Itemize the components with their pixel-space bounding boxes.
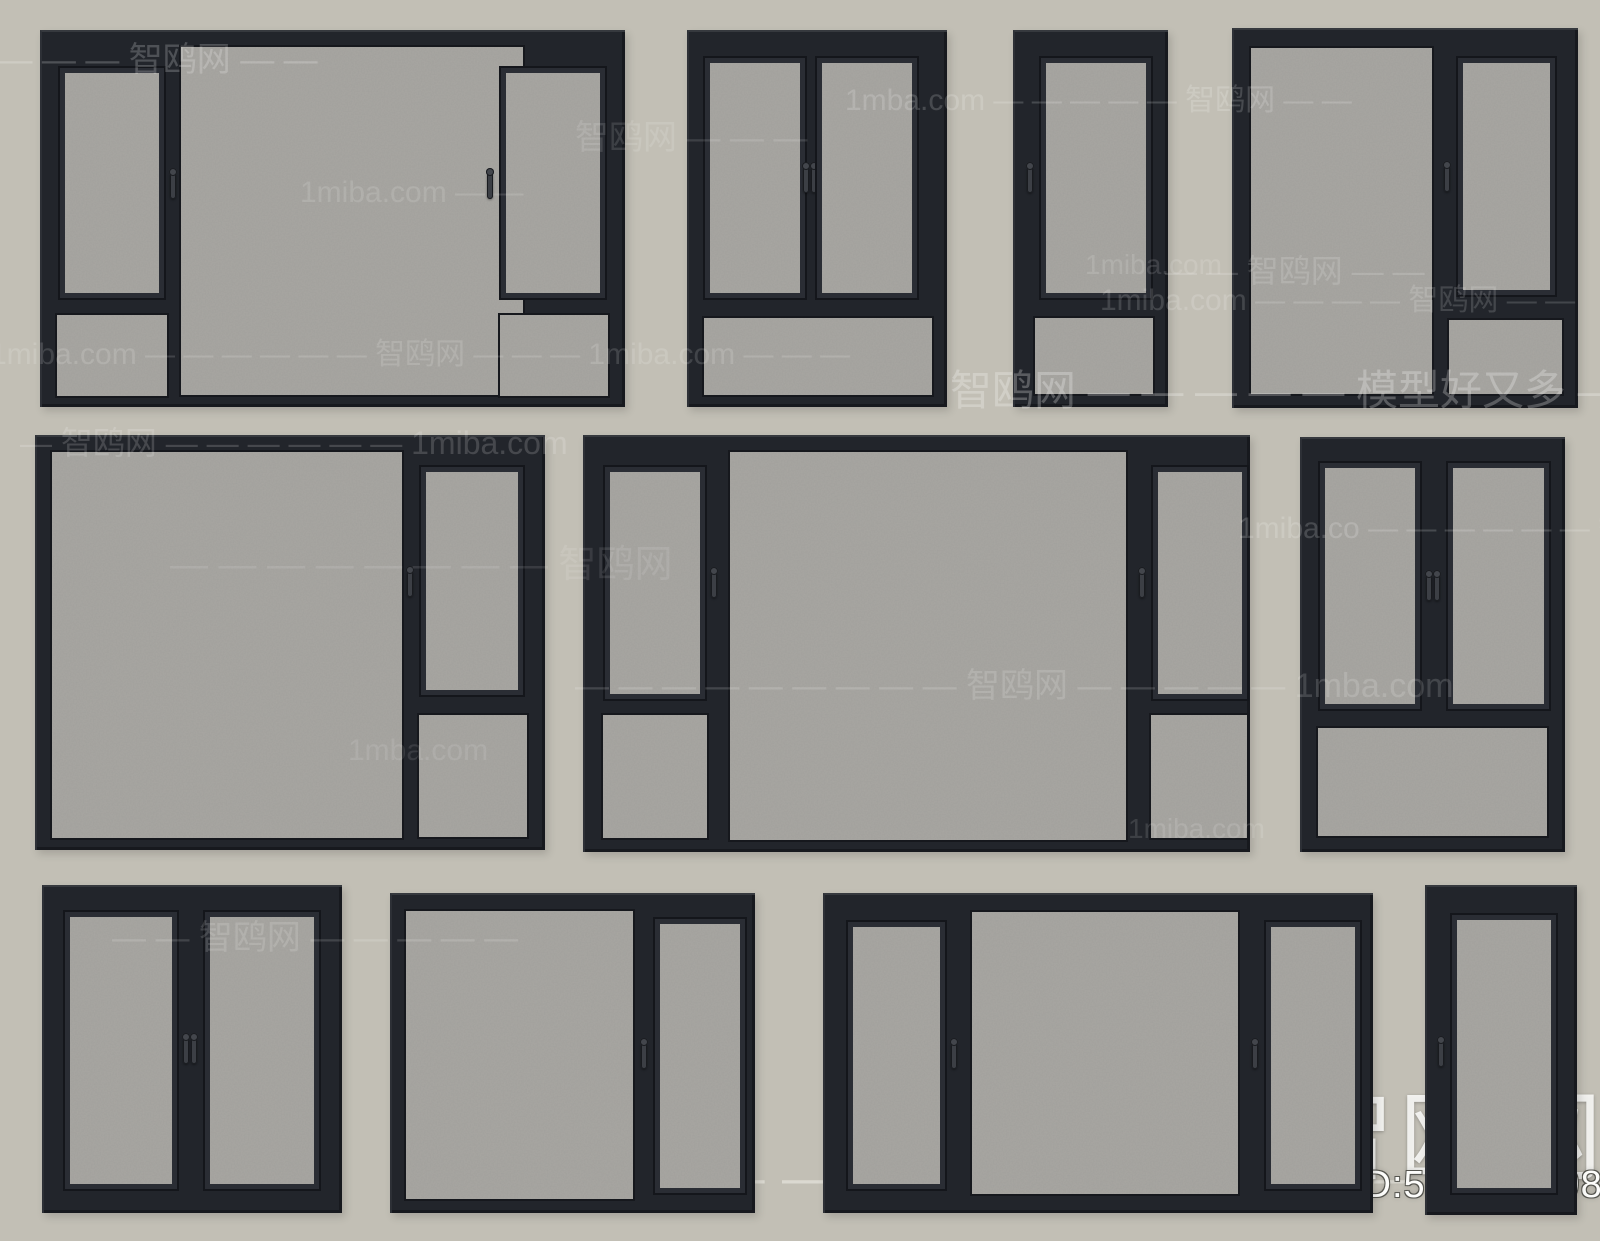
fixed-glass-pane: [1447, 318, 1564, 396]
casement-glass-pane: [1041, 58, 1151, 298]
window-handle: [1434, 574, 1440, 601]
model-preview-canvas: 智鸥网 — — — — — 模型好又多 — — — — 智鸥网 ID:54975…: [0, 0, 1600, 1241]
window-frame-top-2: [687, 30, 947, 407]
fixed-glass-pane: [1316, 726, 1549, 838]
glass-grain-texture: [57, 315, 167, 396]
window-handle: [407, 570, 413, 597]
glass-grain-texture: [1158, 472, 1242, 694]
window-handle: [487, 172, 493, 199]
fixed-glass-pane: [728, 450, 1128, 842]
casement-glass-pane: [421, 467, 523, 695]
fixed-glass-pane: [417, 713, 529, 839]
glass-grain-texture: [1046, 63, 1146, 293]
glass-grain-texture: [704, 318, 932, 395]
casement-glass-pane: [1266, 922, 1360, 1189]
window-handle: [711, 571, 717, 598]
glass-grain-texture: [822, 63, 912, 293]
fixed-glass-pane: [970, 910, 1240, 1196]
casement-glass-pane: [1452, 915, 1556, 1193]
window-handle: [1444, 165, 1450, 192]
glass-grain-texture: [603, 715, 707, 838]
window-handle: [170, 172, 176, 199]
window-handle: [1426, 574, 1432, 601]
glass-grain-texture: [660, 924, 740, 1188]
window-handle: [1438, 1040, 1444, 1067]
window-handle: [1252, 1042, 1258, 1069]
casement-glass-pane: [605, 467, 705, 699]
window-frame-mid-2: [583, 435, 1250, 852]
fixed-glass-pane: [55, 313, 169, 398]
glass-grain-texture: [610, 472, 700, 694]
window-handle: [641, 1042, 647, 1069]
fixed-glass-pane: [1249, 46, 1434, 396]
casement-glass-pane: [501, 68, 605, 298]
casement-glass-pane: [1448, 463, 1549, 709]
glass-grain-texture: [853, 927, 940, 1184]
fixed-glass-pane: [179, 45, 525, 397]
glass-grain-texture: [1453, 468, 1544, 704]
casement-glass-pane: [655, 919, 745, 1193]
casement-glass-pane: [60, 68, 164, 298]
casement-glass-pane: [1458, 58, 1555, 295]
glass-grain-texture: [506, 73, 600, 293]
glass-grain-texture: [710, 63, 800, 293]
window-frame-top-3: [1013, 30, 1168, 407]
casement-glass-pane: [1153, 467, 1247, 699]
window-handle: [1139, 571, 1145, 598]
casement-glass-pane: [205, 912, 319, 1189]
casement-glass-pane: [705, 58, 805, 298]
casement-glass-pane: [1320, 463, 1420, 709]
glass-grain-texture: [1457, 920, 1551, 1188]
glass-grain-texture: [181, 47, 523, 395]
window-frame-mid-3: [1300, 437, 1565, 852]
window-frame-bottom-3: [823, 893, 1373, 1213]
window-frame-top-1: [40, 30, 625, 407]
casement-glass-pane: [848, 922, 945, 1189]
fixed-glass-pane: [601, 713, 709, 840]
window-frame-bottom-2: [390, 893, 755, 1213]
glass-grain-texture: [500, 315, 608, 396]
window-handle: [951, 1042, 957, 1069]
fixed-glass-pane: [404, 909, 635, 1201]
glass-grain-texture: [1271, 927, 1355, 1184]
glass-grain-texture: [1151, 715, 1247, 838]
glass-grain-texture: [972, 912, 1238, 1194]
glass-grain-texture: [426, 472, 518, 690]
glass-grain-texture: [1318, 728, 1547, 836]
casement-glass-pane: [817, 58, 917, 298]
glass-grain-texture: [406, 911, 633, 1199]
fixed-glass-pane: [702, 316, 934, 397]
window-handle: [1027, 166, 1033, 193]
glass-grain-texture: [70, 917, 172, 1184]
glass-grain-texture: [52, 452, 402, 838]
fixed-glass-pane: [50, 450, 404, 840]
glass-grain-texture: [1035, 318, 1153, 394]
glass-grain-texture: [1251, 48, 1432, 394]
fixed-glass-pane: [1033, 316, 1155, 396]
window-handle: [803, 166, 809, 193]
window-frame-top-4: [1232, 28, 1578, 408]
casement-glass-pane: [65, 912, 177, 1189]
fixed-glass-pane: [1149, 713, 1249, 840]
window-handle: [183, 1037, 189, 1064]
glass-grain-texture: [65, 73, 159, 293]
glass-grain-texture: [1463, 63, 1550, 290]
window-frame-bottom-1: [42, 885, 342, 1213]
window-frame-bottom-4: [1425, 885, 1577, 1215]
glass-grain-texture: [419, 715, 527, 837]
window-frame-mid-1: [35, 435, 545, 850]
fixed-glass-pane: [498, 313, 610, 398]
glass-grain-texture: [730, 452, 1126, 840]
glass-grain-texture: [1449, 320, 1562, 394]
glass-grain-texture: [210, 917, 314, 1184]
glass-grain-texture: [1325, 468, 1415, 704]
window-handle: [191, 1037, 197, 1064]
